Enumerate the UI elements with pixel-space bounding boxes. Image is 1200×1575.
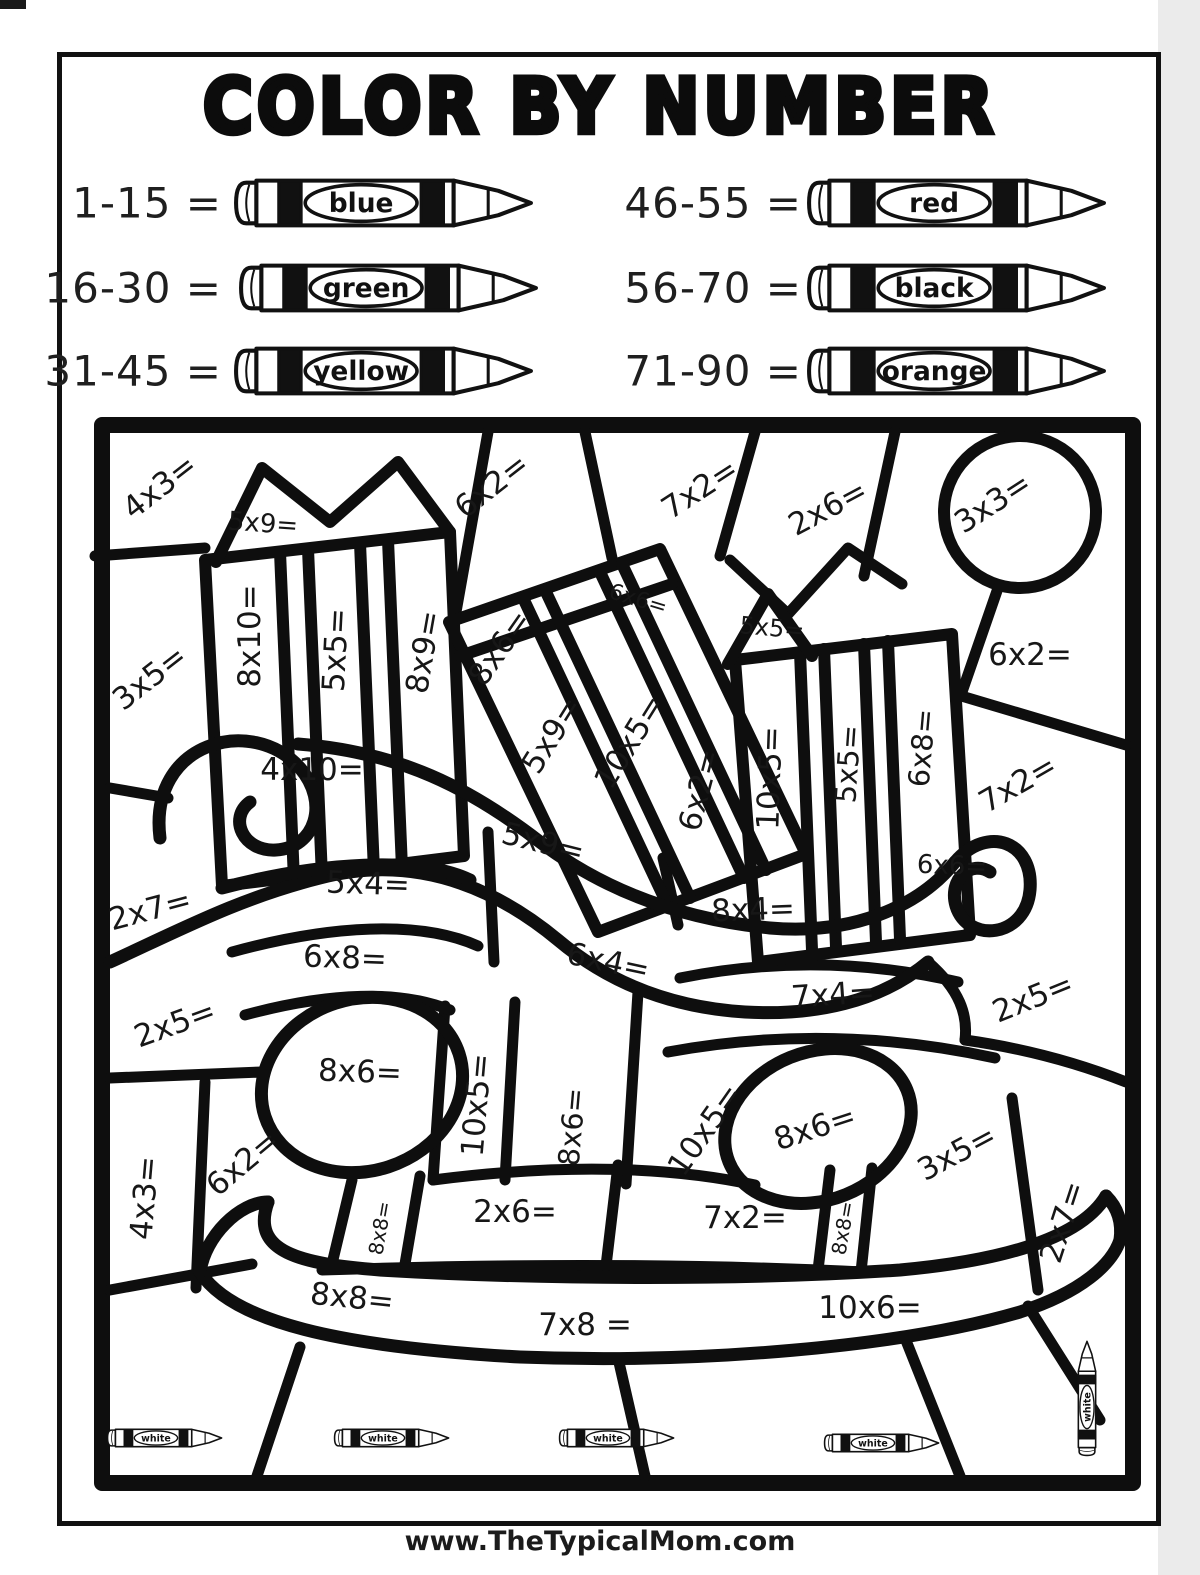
math-problem: 8x6= bbox=[552, 1086, 593, 1167]
math-problem: 6x2= bbox=[988, 637, 1072, 673]
math-problem: 8x10= bbox=[232, 584, 268, 688]
crayon-color-label: white bbox=[593, 1434, 623, 1445]
math-problem: 8x6= bbox=[318, 1053, 403, 1092]
white-crayon-icon: white bbox=[558, 1425, 676, 1451]
math-problem: 5x4= bbox=[326, 865, 411, 904]
white-crayon-icon: white bbox=[106, 1425, 224, 1451]
footer: www.TheTypicalMom.com bbox=[0, 1526, 1200, 1557]
math-problem: 7x2= bbox=[703, 1200, 787, 1236]
math-problem: 6x6= bbox=[916, 850, 987, 882]
math-problem: 4x10= bbox=[260, 752, 364, 788]
math-problem: 7x8 = bbox=[538, 1307, 632, 1343]
math-problem: 10x6= bbox=[818, 1290, 922, 1326]
white-crayon-icon: white bbox=[333, 1425, 451, 1451]
white-crayon-icon: white bbox=[1074, 1339, 1100, 1457]
crayon-color-label: white bbox=[368, 1434, 398, 1445]
math-problem: 7x4= bbox=[790, 974, 876, 1016]
white-crayon-icon: white bbox=[823, 1430, 941, 1456]
math-problem: 5x9= bbox=[227, 507, 299, 542]
footer-url[interactable]: www.TheTypicalMom.com bbox=[405, 1526, 796, 1557]
crayon-color-label: white bbox=[858, 1439, 888, 1450]
math-problem: 5x5= bbox=[738, 611, 805, 645]
crayon-color-label: white bbox=[141, 1434, 171, 1445]
math-problem: 5x5= bbox=[828, 724, 867, 805]
math-problem: 8x4= bbox=[711, 891, 796, 930]
math-problem: 4x3= bbox=[123, 1155, 166, 1242]
math-problem: 6x8= bbox=[902, 707, 943, 788]
math-problem: 6x8= bbox=[303, 939, 388, 978]
math-problem: 5x5= bbox=[316, 607, 356, 693]
math-problem: 10x5= bbox=[750, 726, 790, 831]
crayon-color-label: white bbox=[1083, 1392, 1094, 1422]
math-problem: 2x6= bbox=[473, 1194, 557, 1230]
